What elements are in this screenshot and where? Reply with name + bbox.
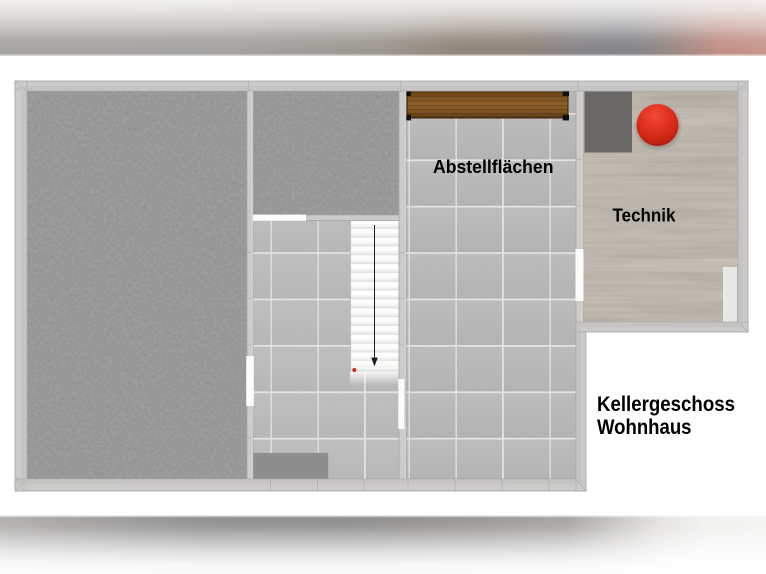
svg-text:Technik: Technik xyxy=(613,205,677,226)
svg-text:Kellergeschoss: Kellergeschoss xyxy=(597,393,735,416)
svg-text:Wohnhaus: Wohnhaus xyxy=(597,416,692,439)
svg-text:Abstellflächen: Abstellflächen xyxy=(433,157,554,177)
